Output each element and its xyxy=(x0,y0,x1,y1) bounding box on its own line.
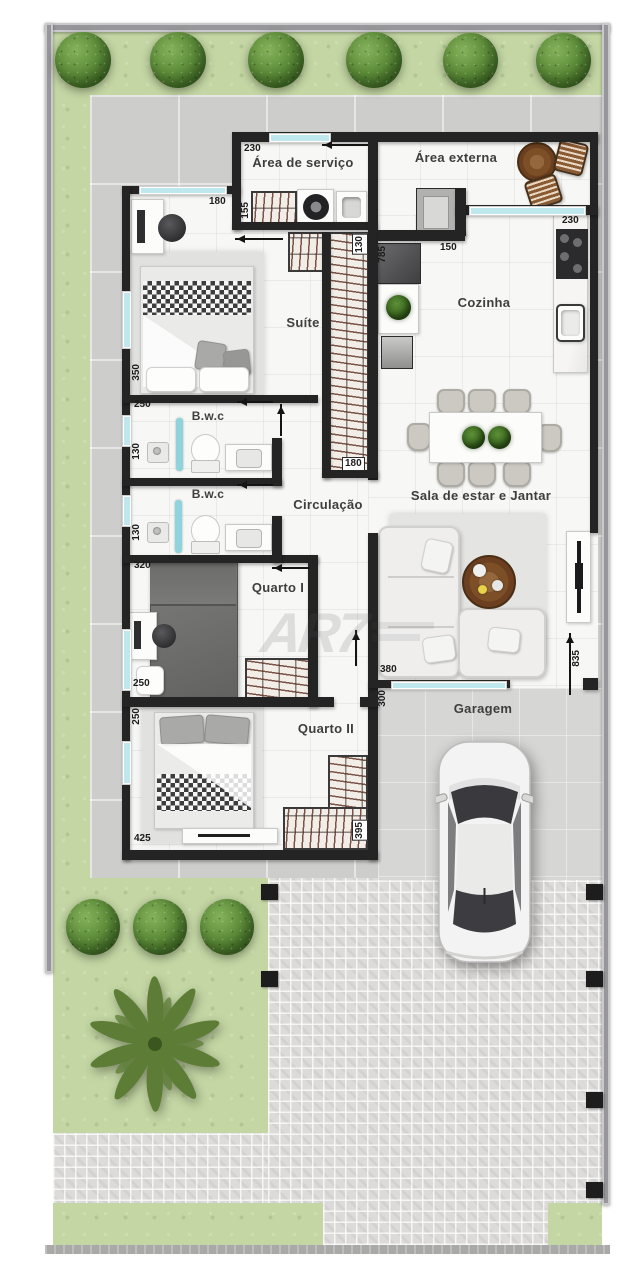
bwc2-sink-basin xyxy=(236,529,262,548)
wall xyxy=(122,697,334,707)
wall xyxy=(322,232,330,478)
wall xyxy=(322,470,378,478)
wall xyxy=(455,188,466,236)
cooktop-burner-icon xyxy=(573,238,582,247)
sofa-cushion-line xyxy=(388,576,454,578)
suite-closet-strip xyxy=(329,232,369,472)
lawn-top xyxy=(53,32,602,95)
dim-label: 155 xyxy=(241,202,251,219)
wall xyxy=(368,142,378,480)
dim-label: 380 xyxy=(380,665,397,675)
suite-closet-top xyxy=(288,232,326,272)
q2-pillow xyxy=(204,714,250,746)
palm-tree-icon xyxy=(83,972,227,1116)
q2-duvet-fold xyxy=(157,744,251,808)
bush-icon xyxy=(200,899,254,955)
room-label-quarto2: Quarto II xyxy=(298,721,354,736)
dim-label: 230 xyxy=(562,216,579,226)
suite-pillow xyxy=(199,367,249,392)
dim-label: 130 xyxy=(352,234,368,255)
room-label-suite: Suíte xyxy=(286,315,319,330)
post-icon xyxy=(586,971,603,987)
watermark-logo: AR7 xyxy=(257,600,369,665)
watermark-text-bar xyxy=(372,622,434,629)
cooktop-burner-icon xyxy=(573,264,582,273)
dim-label: 350 xyxy=(132,364,142,381)
plant-icon xyxy=(386,295,411,320)
fence-top xyxy=(45,23,610,32)
room-label-sala: Sala de estar e Jantar xyxy=(411,488,551,503)
suite-bed-blanket xyxy=(143,281,251,315)
fence-left xyxy=(45,23,53,973)
post-icon xyxy=(586,1182,603,1198)
dining-table xyxy=(429,412,542,463)
tree-icon xyxy=(150,32,206,88)
q1-desk-chair xyxy=(152,624,176,648)
window xyxy=(123,496,131,526)
wall xyxy=(272,516,282,563)
q2-window-line xyxy=(198,834,250,837)
tree-icon xyxy=(346,32,402,88)
laundry-tank-basin xyxy=(342,197,361,218)
door-arrow xyxy=(235,238,283,240)
bwc2-shower-drain xyxy=(153,527,161,535)
dim-label: 250 xyxy=(132,708,142,725)
door-arrow xyxy=(322,144,368,146)
bush-icon xyxy=(66,899,120,955)
dining-chair xyxy=(407,423,431,451)
dim-label: 230 xyxy=(244,144,261,154)
wall xyxy=(232,222,377,230)
kitchen-sink-basin xyxy=(561,310,580,336)
dim-label: 300 xyxy=(378,690,388,707)
plant-icon xyxy=(488,426,511,449)
q2-pillow xyxy=(159,714,205,745)
post-icon xyxy=(586,884,603,900)
tree-icon xyxy=(443,33,498,88)
floor-plan-canvas: AR7 Área de serviço Área externa Suíte C… xyxy=(0,0,640,1280)
coffee-cup-icon xyxy=(473,564,486,577)
door-arrow xyxy=(237,401,273,403)
wall xyxy=(122,395,318,403)
wall-pillar xyxy=(583,678,598,690)
tv-icon-center xyxy=(575,563,583,589)
coffee-cup-icon xyxy=(492,580,503,591)
dining-chair xyxy=(437,461,465,487)
bwc1-shower-glass xyxy=(176,418,183,471)
suite-desk-chair xyxy=(158,214,186,242)
wall xyxy=(590,132,598,533)
bwc2-shower-glass xyxy=(175,500,182,553)
post-icon xyxy=(261,884,278,900)
door-arrow xyxy=(237,484,273,486)
lawn-strip-bottom-left xyxy=(53,1203,323,1245)
wall xyxy=(272,438,282,486)
driveway-pavers xyxy=(268,878,602,1245)
fence-right xyxy=(602,23,610,1205)
window xyxy=(140,187,226,194)
room-label-bwc2: B.w.c xyxy=(192,487,224,501)
barbecue-grill-inner xyxy=(423,196,449,229)
wall xyxy=(122,555,318,563)
bwc1-sink-basin xyxy=(236,449,262,468)
room-label-servico: Área de serviço xyxy=(252,155,353,170)
window xyxy=(123,292,131,348)
bwc2-toilet-tank xyxy=(191,541,220,554)
wall xyxy=(122,850,378,860)
dim-label: 130 xyxy=(132,524,142,541)
wall xyxy=(360,697,378,707)
dining-chair xyxy=(468,461,496,487)
dim-label: 425 xyxy=(134,834,151,844)
service-cabinet xyxy=(251,191,297,226)
tree-icon xyxy=(248,32,304,88)
sidewalk-curb xyxy=(45,1245,610,1254)
watermark-text-bar xyxy=(372,634,420,641)
tree-icon xyxy=(536,33,591,88)
dim-label: 785 xyxy=(378,246,388,263)
bwc1-toilet-tank xyxy=(191,460,220,473)
dining-chair xyxy=(503,461,531,487)
dim-label: 180 xyxy=(209,197,226,207)
window xyxy=(470,207,585,215)
door-arrow xyxy=(272,567,310,569)
q1-bed-fold xyxy=(150,560,236,606)
coffee-table xyxy=(462,555,516,609)
cooktop-burner-icon xyxy=(560,234,569,243)
plant-icon xyxy=(462,426,485,449)
post-icon xyxy=(261,971,278,987)
window xyxy=(123,630,131,690)
lawn-left-strip xyxy=(53,95,90,891)
wall xyxy=(377,230,465,241)
dim-label: 150 xyxy=(440,243,457,253)
room-label-cozinha: Cozinha xyxy=(458,295,511,310)
dim-label: 180 xyxy=(342,457,365,471)
post-icon xyxy=(586,1092,603,1108)
bush-icon xyxy=(133,899,187,955)
window-sliding-door xyxy=(392,682,506,689)
bwc1-shower-drain xyxy=(153,447,161,455)
cooktop-burner-icon xyxy=(560,252,569,261)
dim-label: 320 xyxy=(134,561,151,571)
suite-desk-monitor xyxy=(137,210,145,243)
dim-label: 250 xyxy=(133,679,150,689)
room-label-bwc1: B.w.c xyxy=(192,409,224,423)
sofa-pillow xyxy=(421,634,456,664)
lawn-strip-bottom-right xyxy=(548,1203,602,1245)
window xyxy=(123,416,131,446)
dim-label: 130 xyxy=(132,443,142,460)
room-label-circulacao: Circulação xyxy=(293,497,362,512)
q1-desk-monitor xyxy=(134,621,141,649)
room-label-garagem: Garagem xyxy=(454,701,512,716)
washer-drum-icon xyxy=(303,194,329,220)
window xyxy=(123,742,131,784)
room-label-externa: Área externa xyxy=(415,150,497,165)
dim-label: 250 xyxy=(134,400,151,410)
dim-label: 395 xyxy=(352,820,368,841)
car-top-view xyxy=(436,740,533,964)
door-arrow xyxy=(280,404,282,436)
suite-pillow xyxy=(146,367,196,392)
lemon-icon xyxy=(478,585,487,594)
sofa-pillow xyxy=(487,626,521,653)
room-label-quarto1: Quarto I xyxy=(252,580,304,595)
kitchen-low-cabinet xyxy=(381,336,413,369)
tree-icon xyxy=(55,32,111,88)
dim-label: 835 xyxy=(572,650,582,667)
